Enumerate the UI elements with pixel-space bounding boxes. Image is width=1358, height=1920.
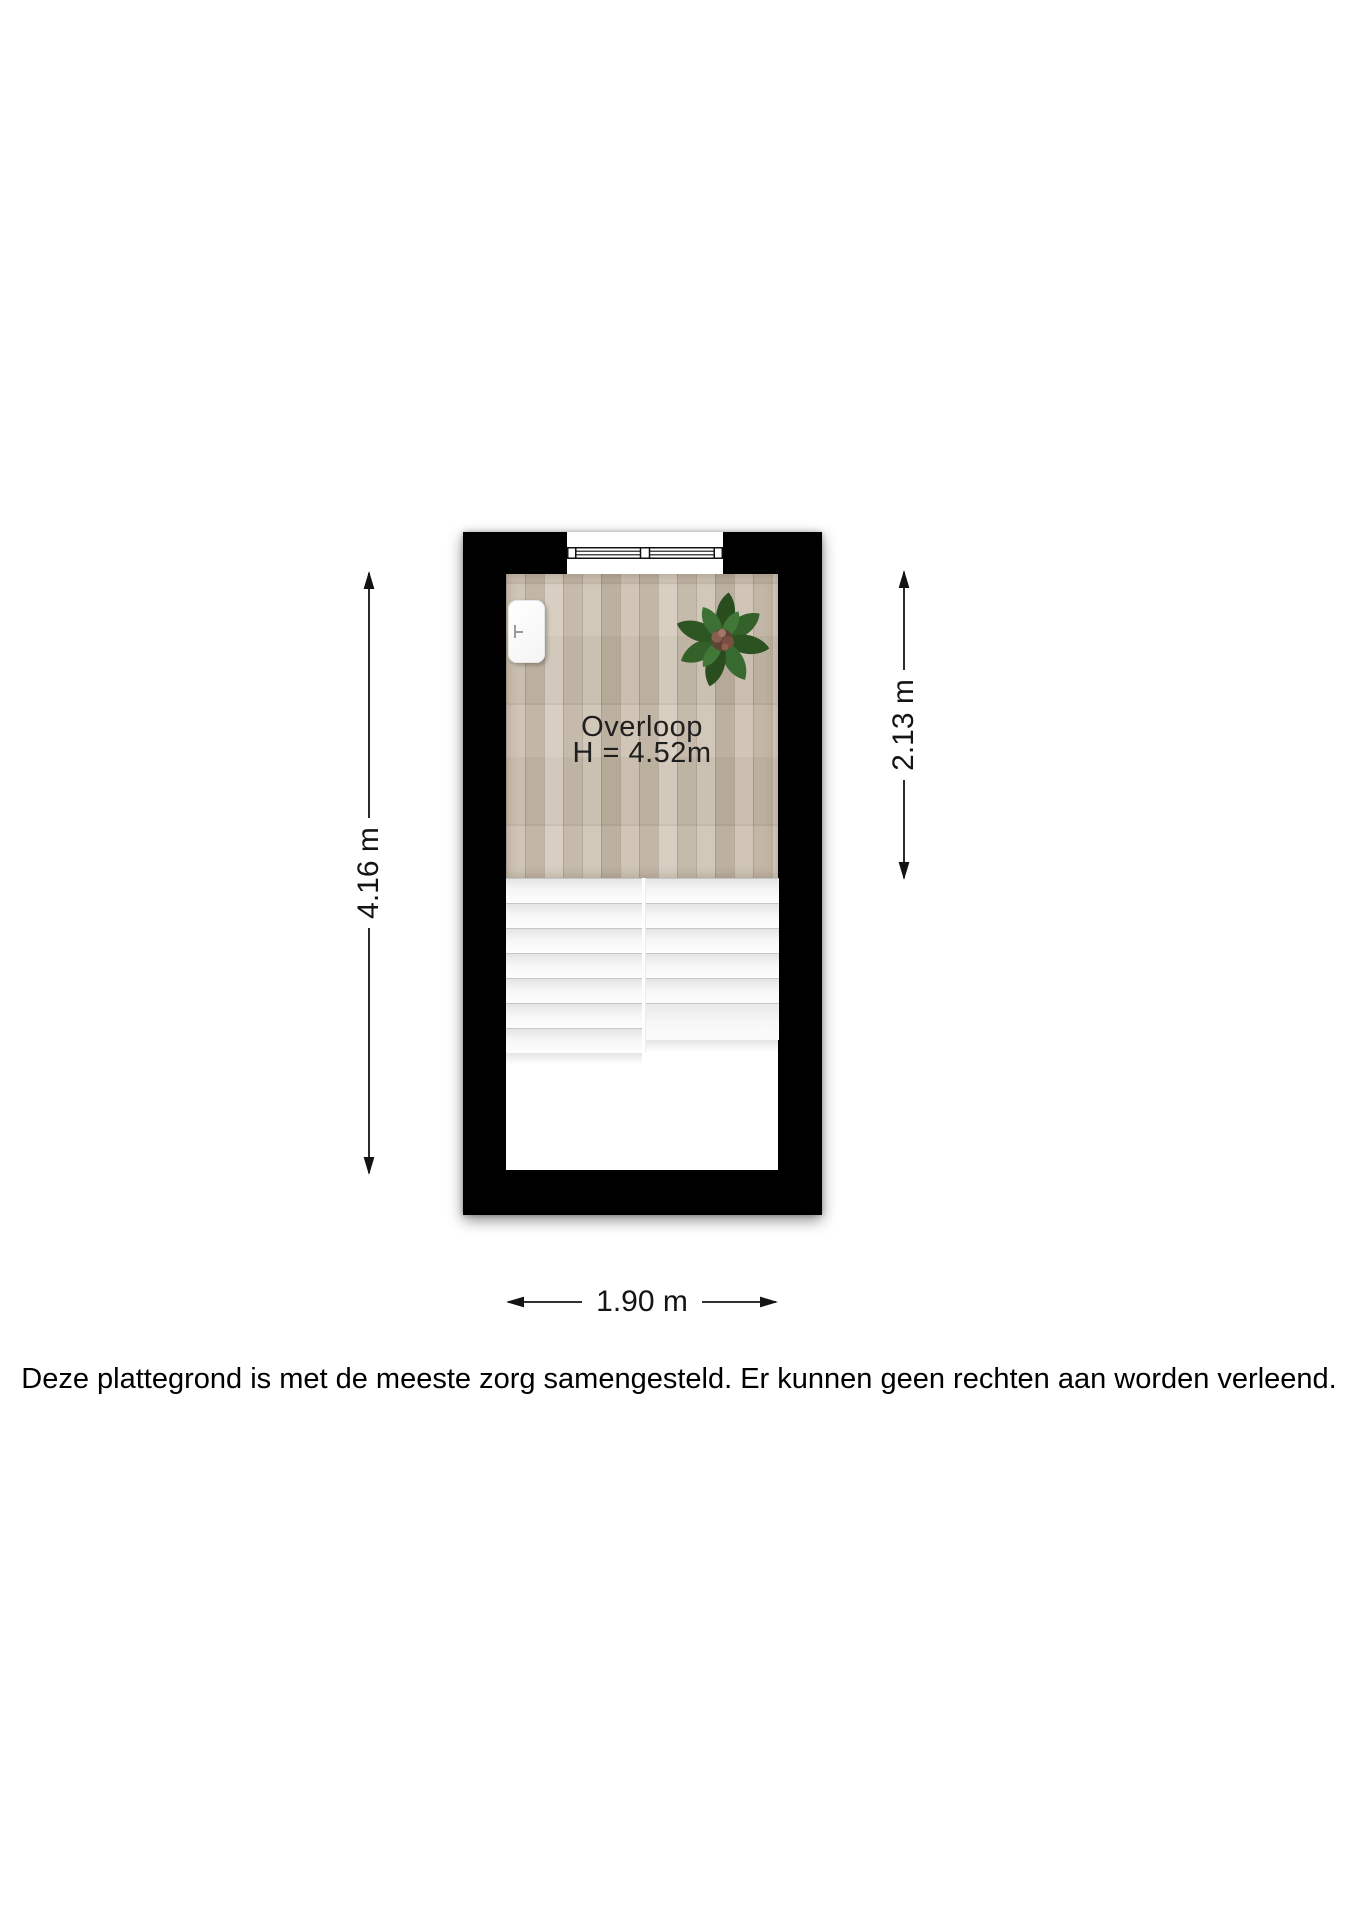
stairs — [506, 878, 778, 1170]
disclaimer-text: Deze plattegrond is met de meeste zorg s… — [0, 1362, 1358, 1396]
room-height-label: H = 4.52m — [506, 740, 778, 766]
stair-tread — [506, 1028, 642, 1053]
floorplan-page: Overloop H = 4.52m 4.16 m 2.13 m 1.90 m … — [0, 0, 1358, 1920]
stair-tread — [506, 903, 642, 928]
stairs-right-flight — [645, 878, 779, 1052]
stair-tread — [506, 953, 642, 978]
stairs-left-flight — [506, 878, 642, 1065]
stair-tread — [506, 878, 642, 903]
floor-plan: Overloop H = 4.52m — [463, 532, 822, 1215]
stair-tread — [646, 953, 779, 978]
stair-tread — [506, 978, 642, 1003]
window-opening — [567, 532, 723, 574]
room-interior: Overloop H = 4.52m — [506, 574, 778, 1170]
window-icon — [567, 547, 723, 559]
stair-tread — [646, 978, 779, 1003]
stair-tread — [506, 928, 642, 953]
room-label: Overloop H = 4.52m — [506, 714, 778, 766]
stair-tread — [646, 928, 779, 953]
stair-tread — [646, 903, 779, 928]
dim-bottom-label: 1.90 m — [582, 1285, 702, 1319]
radiator — [508, 600, 545, 663]
stair-tread — [646, 878, 779, 903]
stair-landing — [646, 1003, 779, 1040]
dim-right-label: 2.13 m — [886, 670, 922, 780]
plant-icon — [667, 585, 777, 695]
stair-tread — [506, 1003, 642, 1028]
dim-left-label: 4.16 m — [351, 818, 387, 928]
radiator-valve-icon — [511, 625, 523, 638]
